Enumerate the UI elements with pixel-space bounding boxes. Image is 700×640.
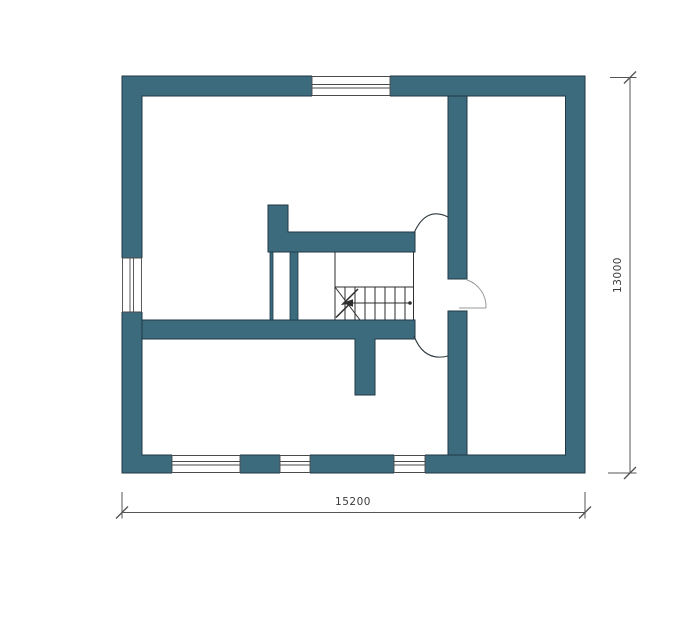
interior-wall-vertical-lower — [448, 311, 467, 455]
walls — [122, 76, 585, 473]
stair-boundary — [335, 252, 414, 320]
outer-walls — [122, 76, 585, 473]
staircase — [335, 252, 414, 320]
floor-plan-canvas: 15200 13000 — [0, 0, 700, 640]
window-bottom-1 — [172, 454, 240, 475]
dimension-right: 13000 — [608, 72, 637, 480]
partition-thin-right — [290, 252, 298, 320]
door-right — [459, 280, 486, 308]
door-right-swing-arc — [467, 280, 486, 308]
dimension-label-width: 15200 — [335, 496, 371, 508]
door-swing-arc-lower — [414, 336, 448, 357]
window-top — [312, 75, 390, 97]
interior-wall-lower-horizontal — [142, 320, 415, 395]
window-bottom-2 — [280, 454, 310, 475]
door-swing-arc-upper — [414, 214, 448, 233]
interior-wall-vertical-upper — [448, 96, 467, 279]
partition-thin-left — [270, 252, 273, 320]
interior-wall-upper-horizontal — [268, 205, 415, 252]
window-bottom-3 — [394, 454, 425, 475]
window-left — [121, 258, 143, 312]
dimension-label-height: 13000 — [612, 257, 624, 293]
stair-direction-arrow — [336, 289, 412, 318]
dimension-bottom: 15200 — [116, 492, 591, 519]
